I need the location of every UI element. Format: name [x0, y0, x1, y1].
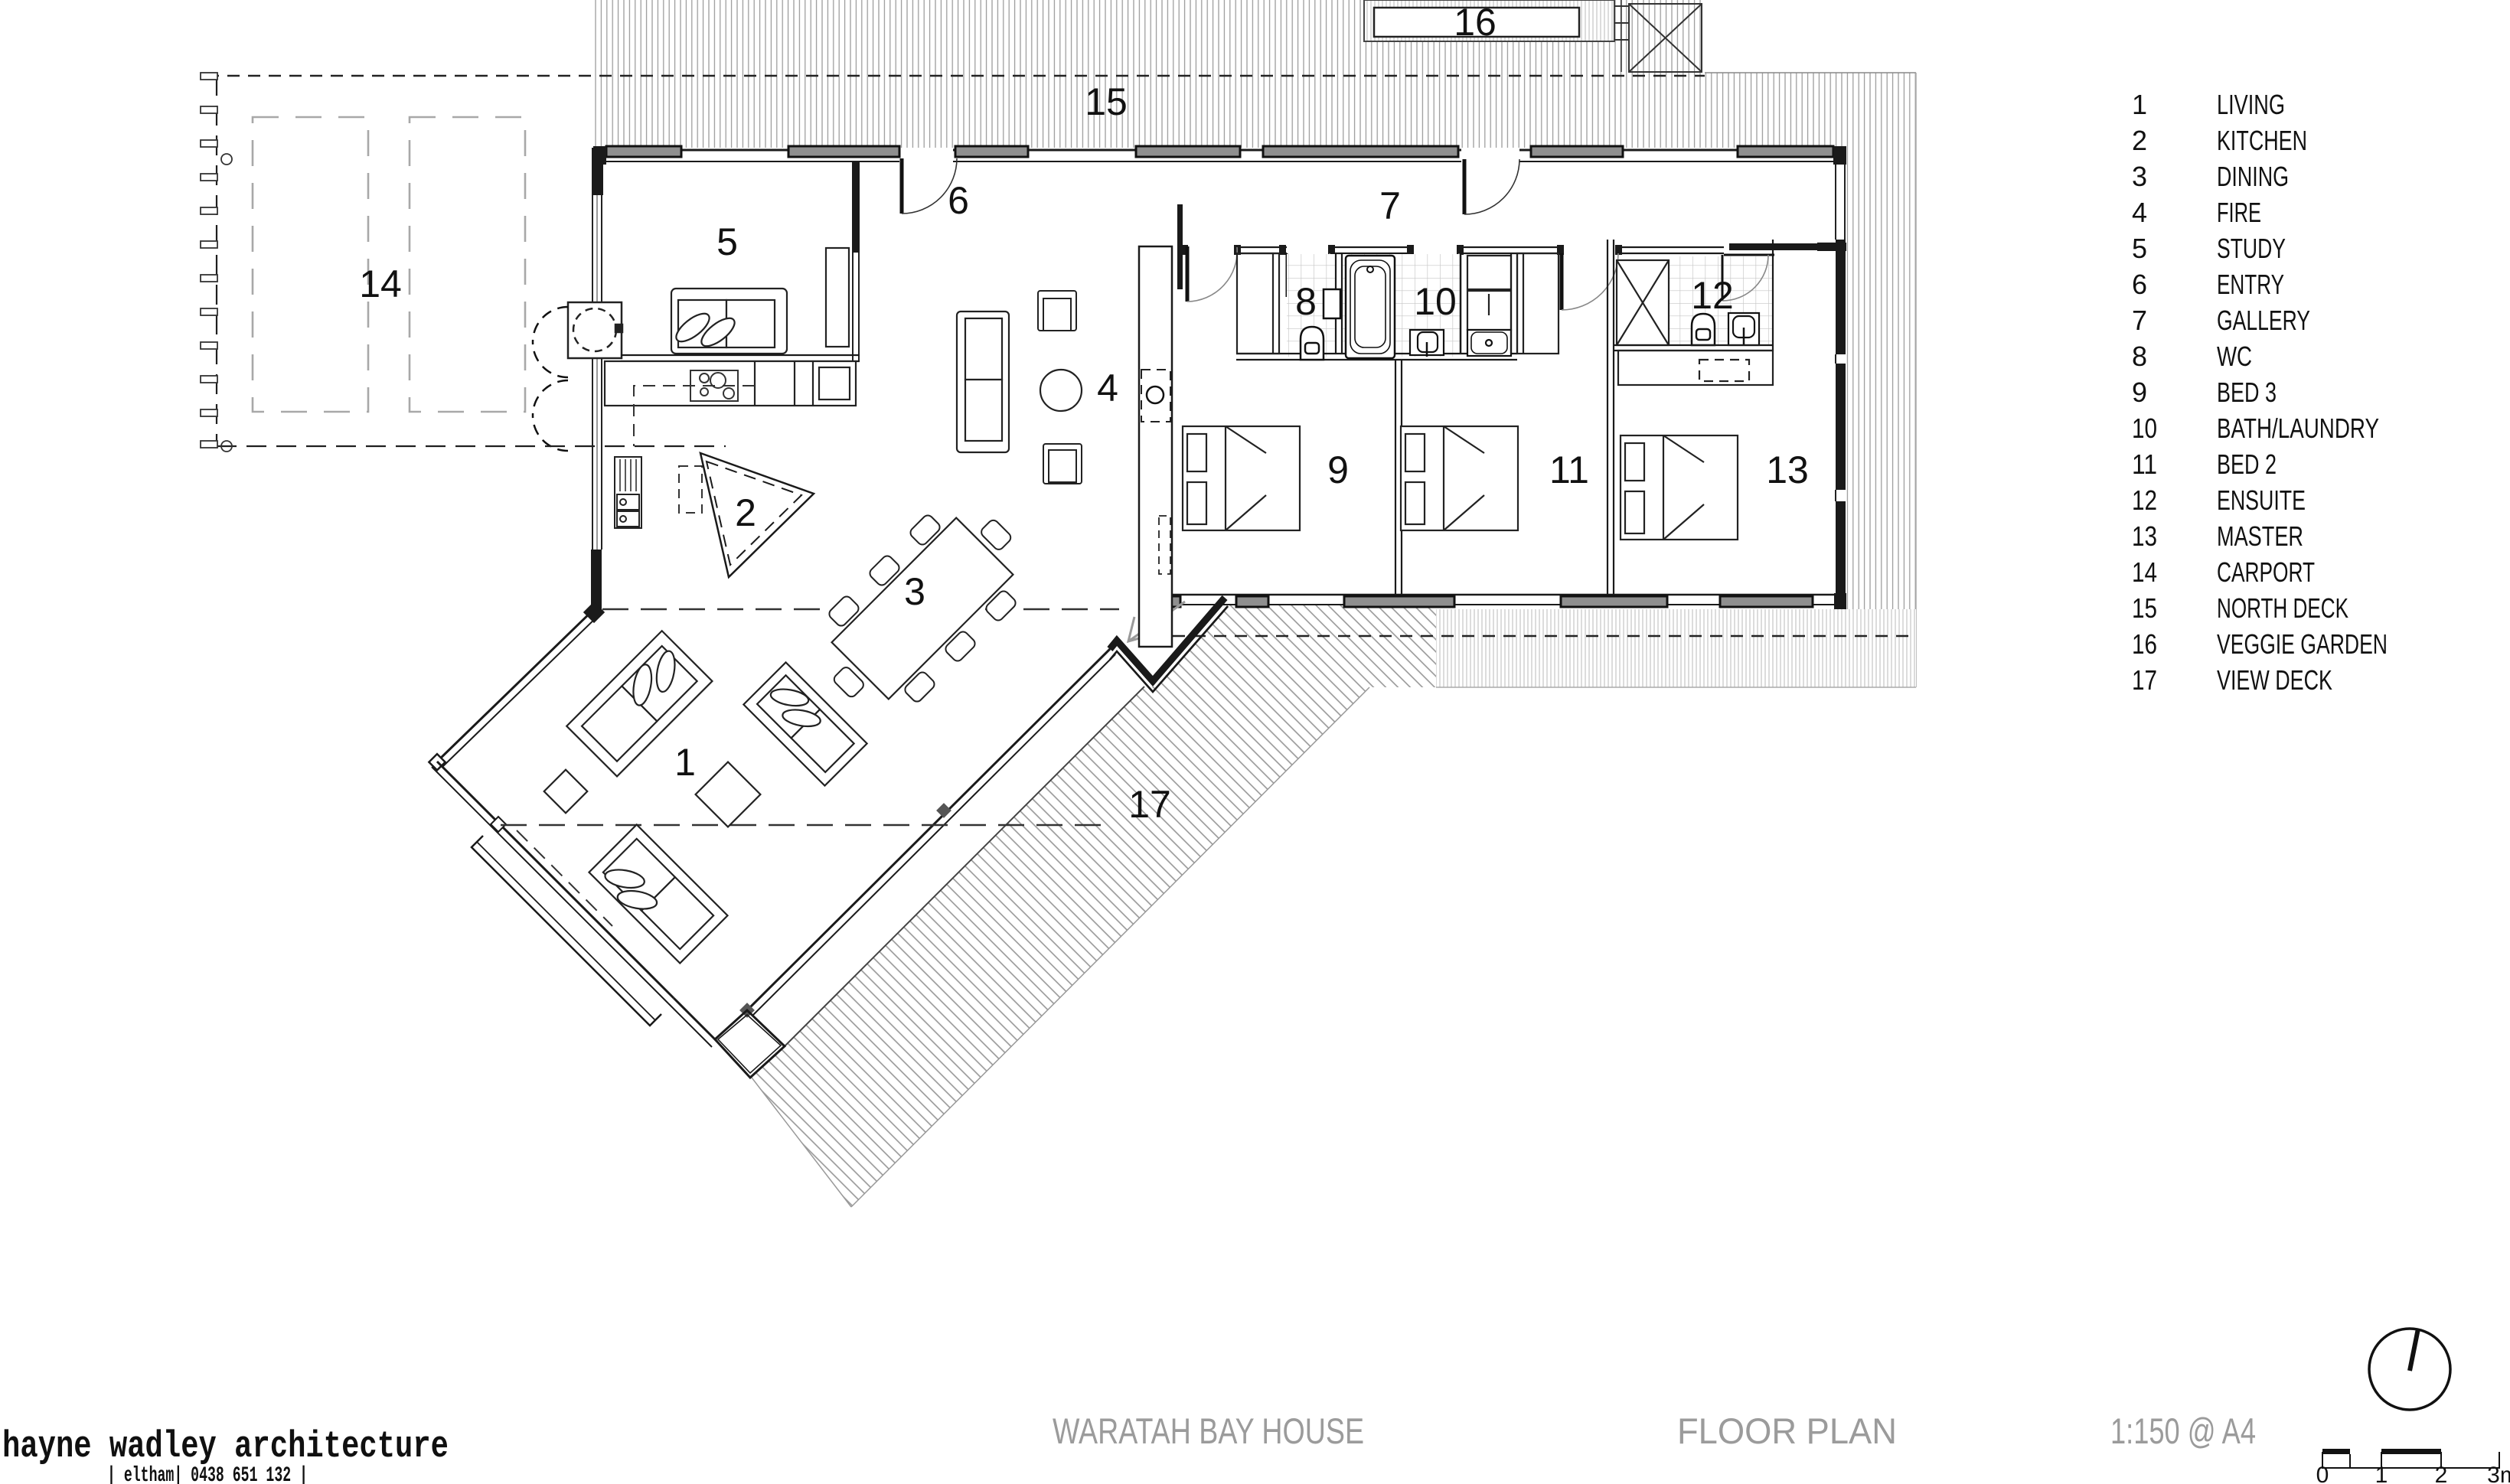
svg-text:STUDY: STUDY — [2217, 233, 2286, 264]
svg-text:17: 17 — [1128, 783, 1171, 826]
svg-text:MASTER: MASTER — [2217, 520, 2303, 552]
svg-text:7: 7 — [1379, 184, 1401, 227]
svg-text:7: 7 — [2132, 305, 2147, 336]
svg-text:11: 11 — [2132, 448, 2157, 480]
svg-text:4: 4 — [1097, 367, 1118, 409]
svg-text:4: 4 — [2132, 197, 2147, 228]
svg-text:VIEW DECK: VIEW DECK — [2217, 664, 2332, 696]
svg-text:FIRE: FIRE — [2217, 197, 2261, 228]
svg-text:0: 0 — [2316, 1463, 2329, 1484]
svg-text:ENTRY: ENTRY — [2217, 269, 2284, 300]
svg-text:14: 14 — [359, 263, 402, 305]
svg-text:2: 2 — [2132, 125, 2147, 156]
svg-text:BED 3: BED 3 — [2217, 377, 2277, 408]
svg-text:9: 9 — [1327, 448, 1349, 491]
svg-text:BATH/LAUNDRY: BATH/LAUNDRY — [2217, 413, 2379, 444]
svg-text:GALLERY: GALLERY — [2217, 305, 2310, 336]
svg-text:hayne wadley architecture: hayne wadley architecture — [2, 1425, 449, 1468]
svg-text:15: 15 — [1085, 80, 1128, 123]
svg-text:6: 6 — [948, 179, 969, 222]
svg-text:15: 15 — [2132, 592, 2157, 624]
svg-text:3: 3 — [904, 570, 925, 613]
svg-text:BED 2: BED 2 — [2217, 448, 2277, 480]
svg-text:10: 10 — [2132, 413, 2157, 444]
svg-text:3m: 3m — [2487, 1463, 2510, 1484]
svg-text:DINING: DINING — [2217, 161, 2289, 192]
svg-text:CARPORT: CARPORT — [2217, 556, 2315, 588]
svg-text:6: 6 — [2132, 269, 2147, 300]
svg-text:9: 9 — [2132, 377, 2147, 408]
svg-text:1:150 @ A4: 1:150 @ A4 — [2110, 1411, 2256, 1451]
svg-text:8: 8 — [1295, 280, 1317, 323]
svg-text:8: 8 — [2132, 341, 2147, 372]
svg-text:14: 14 — [2132, 556, 2157, 588]
svg-text:3: 3 — [2132, 161, 2147, 192]
svg-text:FLOOR PLAN: FLOOR PLAN — [1677, 1411, 1897, 1451]
svg-text:LIVING: LIVING — [2217, 89, 2285, 120]
svg-text:WARATAH BAY HOUSE: WARATAH BAY HOUSE — [1053, 1411, 1364, 1451]
svg-text:WC: WC — [2217, 341, 2252, 372]
svg-text:13: 13 — [1766, 448, 1809, 491]
svg-text:1: 1 — [2375, 1463, 2388, 1484]
svg-text:1: 1 — [674, 741, 696, 784]
svg-text:12: 12 — [1691, 274, 1734, 317]
svg-text:13: 13 — [2132, 520, 2157, 552]
svg-text:2: 2 — [2435, 1463, 2448, 1484]
svg-text:17: 17 — [2132, 664, 2157, 696]
svg-text:12: 12 — [2132, 484, 2157, 516]
svg-text:1: 1 — [2132, 89, 2147, 120]
svg-text:NORTH DECK: NORTH DECK — [2217, 592, 2348, 624]
svg-text:| eltham| 0438 651 132 |: | eltham| 0438 651 132 | — [107, 1464, 308, 1484]
svg-text:16: 16 — [1454, 1, 1497, 44]
svg-text:5: 5 — [2132, 233, 2147, 264]
svg-text:11: 11 — [1549, 448, 1589, 491]
svg-text:KITCHEN: KITCHEN — [2217, 125, 2307, 156]
svg-text:2: 2 — [735, 491, 756, 534]
svg-text:ENSUITE: ENSUITE — [2217, 484, 2306, 516]
svg-text:10: 10 — [1414, 280, 1457, 323]
svg-text:16: 16 — [2132, 628, 2157, 660]
svg-text:VEGGIE GARDEN: VEGGIE GARDEN — [2217, 628, 2388, 660]
svg-text:5: 5 — [716, 220, 738, 263]
